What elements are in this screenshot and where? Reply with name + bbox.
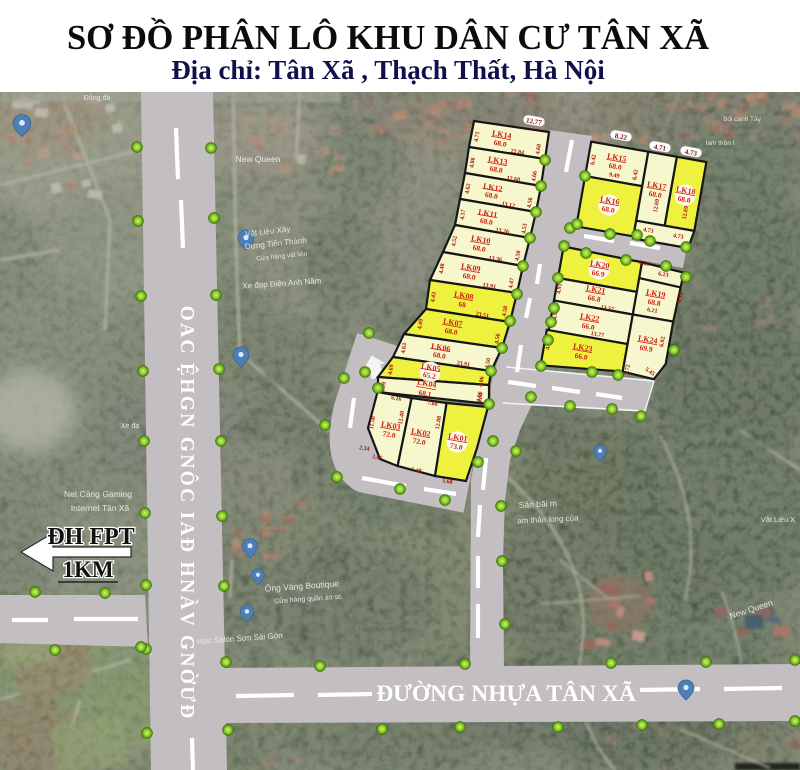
svg-text:Xè đạ: Xè đạ bbox=[121, 423, 139, 430]
svg-text:Vật Liệu X: Vật Liệu X bbox=[761, 515, 796, 524]
svg-text:OAC ỆHGN GNÔC IAĐ HNÀV GNỜƯĐ: OAC ỆHGN GNÔC IAĐ HNÀV GNỜƯĐ bbox=[176, 306, 198, 721]
svg-text:Bối cành Tây: Bối cành Tây bbox=[723, 114, 762, 123]
svg-text:Sân bãi m: Sân bãi m bbox=[518, 498, 557, 510]
svg-text:1KM: 1KM bbox=[62, 557, 113, 582]
svg-text:lam thôn l: lam thôn l bbox=[706, 140, 735, 147]
svg-text:Internet Tân Xã: Internet Tân Xã bbox=[71, 503, 130, 513]
svg-text:Địa chỉ: Tân Xã , Thạch Thất,: Địa chỉ: Tân Xã , Thạch Thất, Hà Nội bbox=[171, 55, 605, 85]
svg-text:ĐH FPT: ĐH FPT bbox=[47, 524, 134, 550]
svg-text:ĐƯỜNG NHỰA TÂN XÃ: ĐƯỜNG NHỰA TÂN XÃ bbox=[376, 680, 636, 707]
svg-text:Đồng đả: Đồng đả bbox=[84, 93, 111, 102]
svg-text:Net Cảng Gaming: Net Cảng Gaming bbox=[64, 489, 132, 499]
svg-text:SƠ ĐỒ PHÂN LÔ KHU DÂN CƯ TÂN X: SƠ ĐỒ PHÂN LÔ KHU DÂN CƯ TÂN XÃ bbox=[67, 18, 709, 57]
svg-text:New Queen: New Queen bbox=[236, 154, 281, 164]
